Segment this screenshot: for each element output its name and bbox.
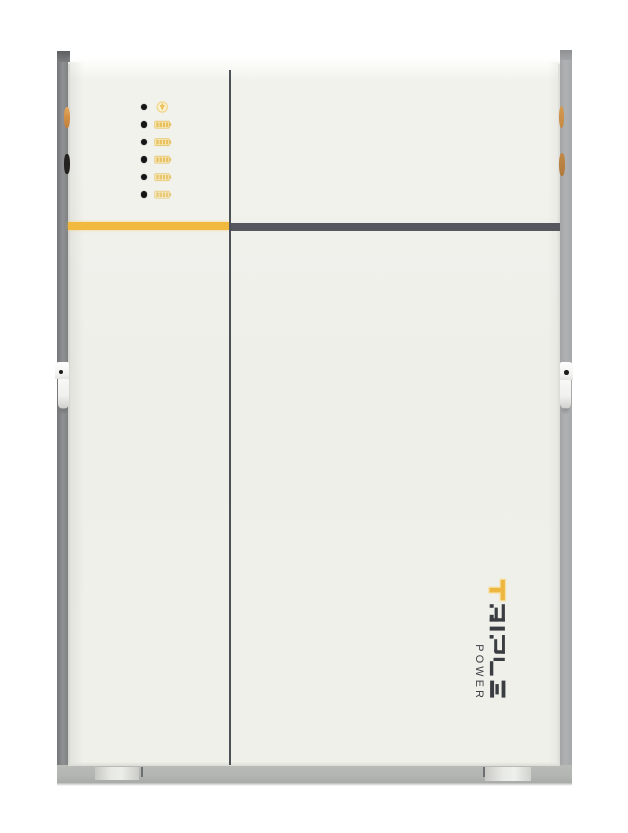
svg-text:POWER: POWER [473, 644, 485, 701]
